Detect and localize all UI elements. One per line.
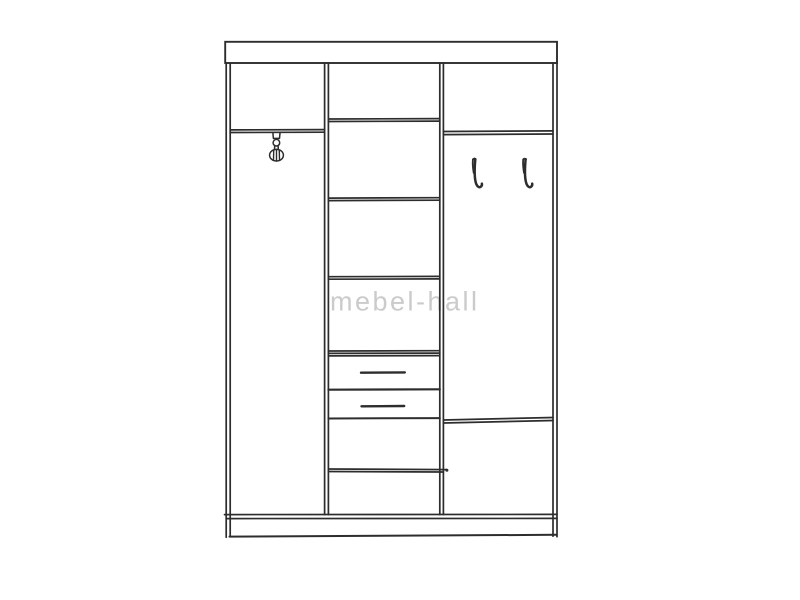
svg-text:mebel-hall: mebel-hall [330,287,480,317]
